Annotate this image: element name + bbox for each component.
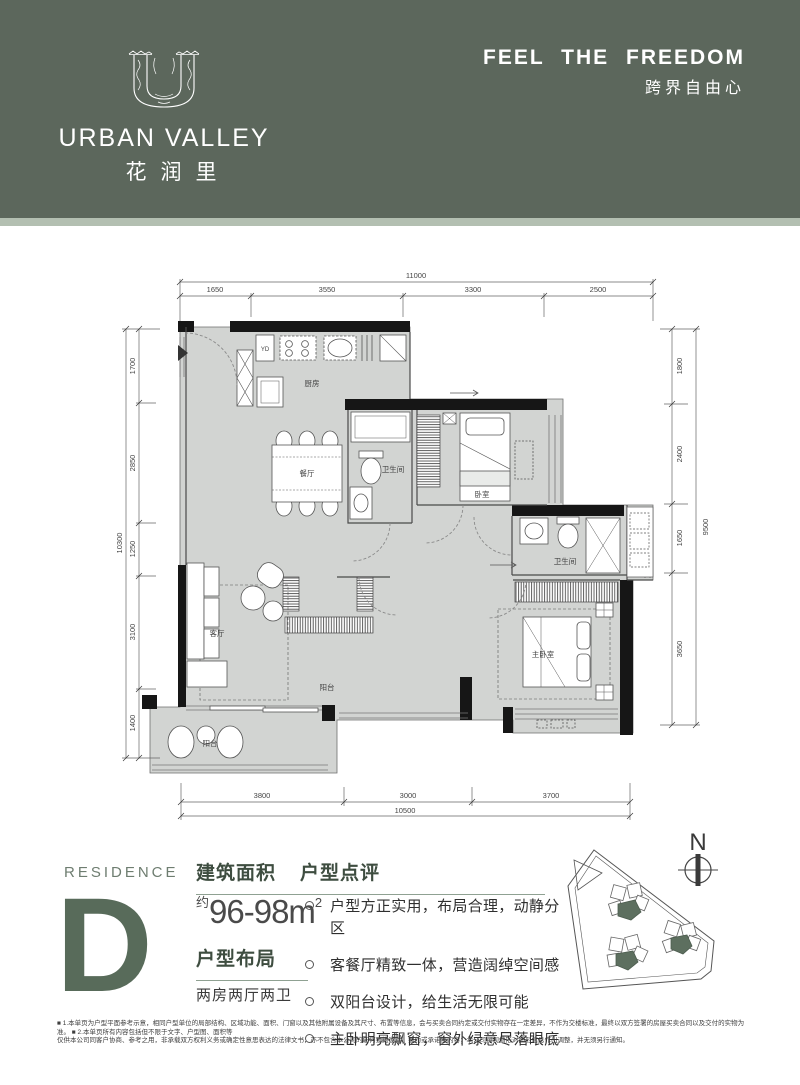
site-boundary [568,850,714,989]
bullet-text: 客餐厅精致一体，营造阔绰空间感 [330,955,560,977]
closet-fixtures [627,507,653,577]
dim-label: 10500 [395,806,416,815]
room-label-balcony-center: 阳台 [320,682,335,692]
slogan-cn: 跨界自由心 [645,74,745,98]
area-heading: 建筑面积 [196,858,308,895]
room-label-bath2: 卫生间 [554,556,577,566]
room-label-bedroom: 卧室 [475,489,490,499]
dim-label: 1650 [675,530,684,547]
dim-label: 10300 [115,533,124,554]
bullet-text: 双阳台设计，给生活无限可能 [330,992,529,1014]
bullet-item: 户型方正实用，布局合理，动静分区 [300,896,560,940]
dim-chain-top [177,279,656,321]
disclaimer: ■ 1.本单页为户型平面参考示意，相同户型单位的局部结构、区域功能、面积、门窗以… [57,1020,757,1046]
urban-valley-logo-icon [124,50,204,116]
room-label-kitchen: 厨房 [305,378,320,388]
bullet-circle-icon [305,901,314,910]
dim-label: 3000 [400,791,417,800]
bullet-text: 户型方正实用，布局合理，动静分区 [330,896,560,940]
layout-heading: 户型布局 [196,944,308,981]
north-compass-icon: N [678,829,718,886]
room-label-yd: YD [261,347,270,353]
dim-label: 2500 [590,285,607,294]
disclaimer-line1: ■ 1.本单页为户型平面参考示意，相同户型单位的局部结构、区域功能、面积、门窗以… [57,1020,757,1037]
slogan-en: FEEL THE FREEDOM [483,46,745,70]
dim-label: 2850 [128,455,137,472]
dim-label: 3550 [319,285,336,294]
dim-chain-right [660,326,700,728]
room-label-living: 客厅 [210,628,225,638]
layout-value: 两房两厅两卫 [196,984,292,1005]
brand-name-cn: 花润里 [40,156,302,186]
review-heading: 户型点评 [300,858,545,895]
dim-label: 1250 [128,541,137,558]
dim-label: 3800 [254,791,271,800]
brand-name-en: URBAN VALLEY [40,124,288,153]
bullet-item: 客餐厅精致一体，营造阔绰空间感 [300,955,560,977]
area-prefix: 约 [196,895,209,910]
dim-label: 2400 [675,446,684,463]
floor-plan: 厨房 餐厅 卫生间 卧室 客厅 卫生间 主卧室 阳台 阳台 YD 11000 1… [60,265,740,850]
dim-label: 1700 [128,358,137,375]
room-label-bath1: 卫生间 [382,464,405,474]
dim-label: 3700 [543,791,560,800]
bullet-circle-icon [305,960,314,969]
room-label-dining: 餐厅 [300,469,315,478]
disclaimer-line2: 仅供本公司同客户协商、参考之用，非承载双方权利义务或确定性意思表达的法律文书，亦… [57,1037,757,1046]
residence-letter: D [56,884,153,1007]
dim-label: 11000 [406,271,426,280]
dim-label: 9500 [701,519,710,536]
dim-label: 1400 [128,715,137,732]
dim-label: 3100 [128,624,137,641]
header-band: URBAN VALLEY 花润里 FEEL THE FREEDOM 跨界自由心 [0,0,800,218]
dim-label: 1650 [207,285,224,294]
dim-label: 1800 [675,358,684,375]
room-label-balcony-front: 阳台 [203,738,218,748]
header-accent-strip [0,218,800,226]
dim-label: 3650 [675,641,684,658]
bullet-item: 双阳台设计，给生活无限可能 [300,992,560,1014]
dim-label: 3300 [465,285,482,294]
room-label-master: 主卧室 [532,649,555,659]
bullet-circle-icon [305,997,314,1006]
site-plan: N [556,826,796,1018]
north-label: N [689,829,706,856]
